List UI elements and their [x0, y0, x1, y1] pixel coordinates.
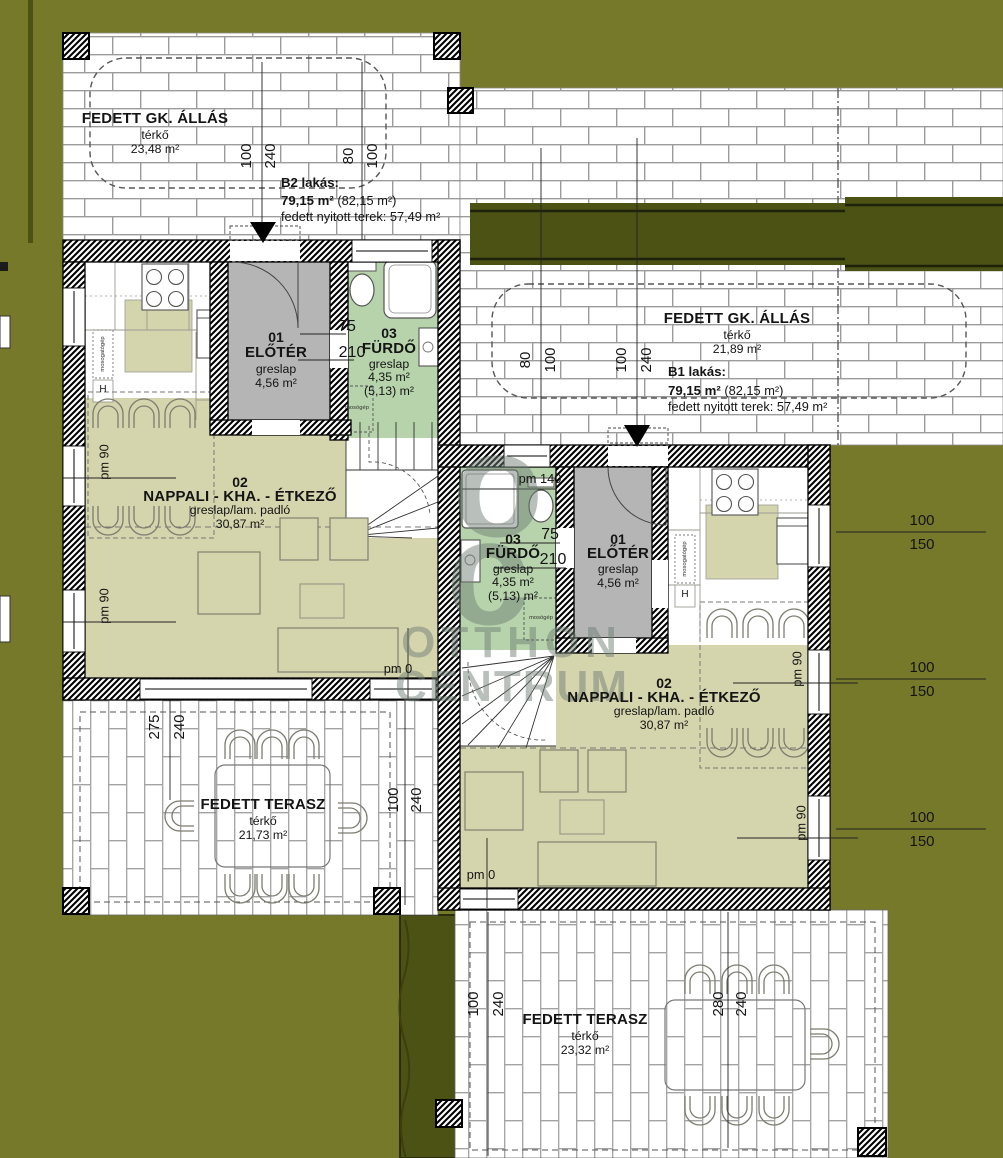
carport-left-surface: térkő: [141, 129, 168, 142]
apartment-b2-gross: (82,15 m²): [334, 193, 397, 208]
dim-b2-win-100: 100: [365, 143, 381, 168]
apartment-b2-name: B2 lakás:: [281, 176, 339, 190]
appliance-b1-hood: H: [681, 590, 688, 601]
dim-b2-entry-100: 100: [239, 143, 255, 168]
dim-b1-door-75: 75: [541, 527, 559, 544]
terrace-b1-title: FEDETT TERASZ: [522, 1012, 647, 1028]
carport-right-area: 21,89 m²: [713, 343, 762, 356]
appliance-b1-dishwasher: mosogatógép: [682, 541, 688, 576]
dim-right-win3-100: 100: [909, 810, 934, 826]
room-b2-eloter-area: 4,56 m²: [255, 377, 297, 390]
floor-plan: o c OTTHON CENTRUM FEDETT GK. ÁLLÁS térk…: [0, 0, 1003, 1158]
apartment-b2-area: 79,15 m²: [281, 193, 334, 208]
appliance-b2-washer: mosógép: [345, 405, 369, 411]
room-b2-nappali-floor: greslap/lam. padló: [190, 504, 290, 517]
room-b1-furdo-area: 4,35 m²: [492, 576, 534, 589]
level-b1-pm90-a: pm 90: [790, 651, 803, 687]
dim-right-win1-100: 100: [909, 513, 934, 529]
dim-terr-b1-240a: 240: [491, 991, 507, 1016]
apartment-b2-area-line: 79,15 m² (82,15 m²): [281, 193, 396, 210]
dim-terr-b1-240b: 240: [734, 991, 750, 1016]
level-b1-pm140: pm 140: [519, 472, 562, 485]
apartment-b1-area: 79,15 m²: [668, 383, 721, 398]
room-b1-eloter-name: ELŐTÉR: [587, 546, 649, 562]
appliance-b2-hood: H: [99, 385, 106, 396]
level-b1-pm90-b: pm 90: [794, 805, 807, 841]
level-b2-pm90-a: pm 90: [97, 444, 110, 480]
apartment-b1-covered: fedett nyitott terek: 57,49 m²: [668, 400, 827, 413]
level-b2-pm90-b: pm 90: [97, 588, 110, 624]
dim-terr-b2-240a: 240: [172, 714, 188, 739]
room-b2-furdo-floor: greslap: [369, 358, 409, 371]
room-b1-nappali-area: 30,87 m²: [640, 719, 689, 732]
terrace-b2-surface: térkő: [249, 815, 276, 828]
dim-terr-b2-275: 275: [147, 714, 163, 739]
dim-b1-entry-100: 100: [614, 347, 630, 372]
appliance-b1-washer: mosógép: [529, 615, 553, 621]
carport-left-area: 23,48 m²: [131, 143, 180, 156]
apartment-b1-area-line: 79,15 m² (82,15 m²): [668, 383, 783, 400]
terrace-b2-area: 21,73 m²: [239, 829, 288, 842]
carport-right-title: FEDETT GK. ÁLLÁS: [664, 311, 811, 327]
room-b2-eloter-name: ELŐTÉR: [245, 345, 307, 361]
dim-terr-b1-280: 280: [711, 991, 727, 1016]
carport-right-surface: térkő: [723, 329, 750, 342]
dim-terr-b1-100: 100: [466, 991, 482, 1016]
dim-right-win2-150: 150: [909, 684, 934, 700]
apartment-b1-name: B1 lakás:: [668, 365, 726, 379]
dim-right-win1-150: 150: [909, 537, 934, 553]
room-b2-eloter-floor: greslap: [256, 363, 296, 376]
carport-left-title: FEDETT GK. ÁLLÁS: [82, 111, 229, 127]
apartment-b2-covered: fedett nyitott terek: 57,49 m²: [281, 210, 440, 223]
dim-b1-win-100: 100: [543, 347, 559, 372]
room-b2-furdo-area: 4,35 m²: [368, 371, 410, 384]
room-b2-furdo-num: 03: [381, 326, 397, 341]
dim-b1-door-210: 210: [540, 552, 567, 569]
room-b1-eloter-area: 4,56 m²: [597, 577, 639, 590]
terrace-b1-area: 23,32 m²: [561, 1044, 610, 1057]
room-b1-furdo-name: FÜRDŐ: [486, 546, 540, 562]
dim-right-win2-100: 100: [909, 660, 934, 676]
room-b2-eloter-num: 01: [268, 330, 284, 345]
apartment-b1-gross: (82,15 m²): [721, 383, 784, 398]
dim-right-win3-150: 150: [909, 834, 934, 850]
terrace-b1-surface: térkő: [571, 1030, 598, 1043]
terrace-b2-title: FEDETT TERASZ: [200, 797, 325, 813]
room-b1-furdo-area-alt: (5,13) m²: [488, 590, 538, 603]
room-b1-furdo-floor: greslap: [493, 563, 533, 576]
dim-b1-entry-240: 240: [639, 347, 655, 372]
room-b1-eloter-floor: greslap: [598, 563, 638, 576]
room-b2-nappali-area: 30,87 m²: [216, 518, 265, 531]
dim-b2-win-80: 80: [341, 148, 357, 165]
dim-terr-b2-240b: 240: [409, 787, 425, 812]
dim-b2-door-75: 75: [338, 319, 356, 336]
dim-b1-win-80: 80: [518, 352, 534, 369]
dim-terr-b2-100: 100: [386, 787, 402, 812]
level-b1-pm0: pm 0: [467, 868, 495, 881]
dim-b2-entry-240: 240: [263, 143, 279, 168]
room-b2-furdo-name: FÜRDŐ: [362, 341, 416, 357]
room-b2-furdo-area-alt: (5,13) m²: [364, 385, 414, 398]
level-b2-pm0: pm 0: [384, 662, 412, 675]
room-b1-nappali-floor: greslap/lam. padló: [614, 705, 714, 718]
dim-b2-door-210: 210: [339, 345, 366, 362]
appliance-b2-dishwasher: mosogatógép: [100, 336, 106, 371]
